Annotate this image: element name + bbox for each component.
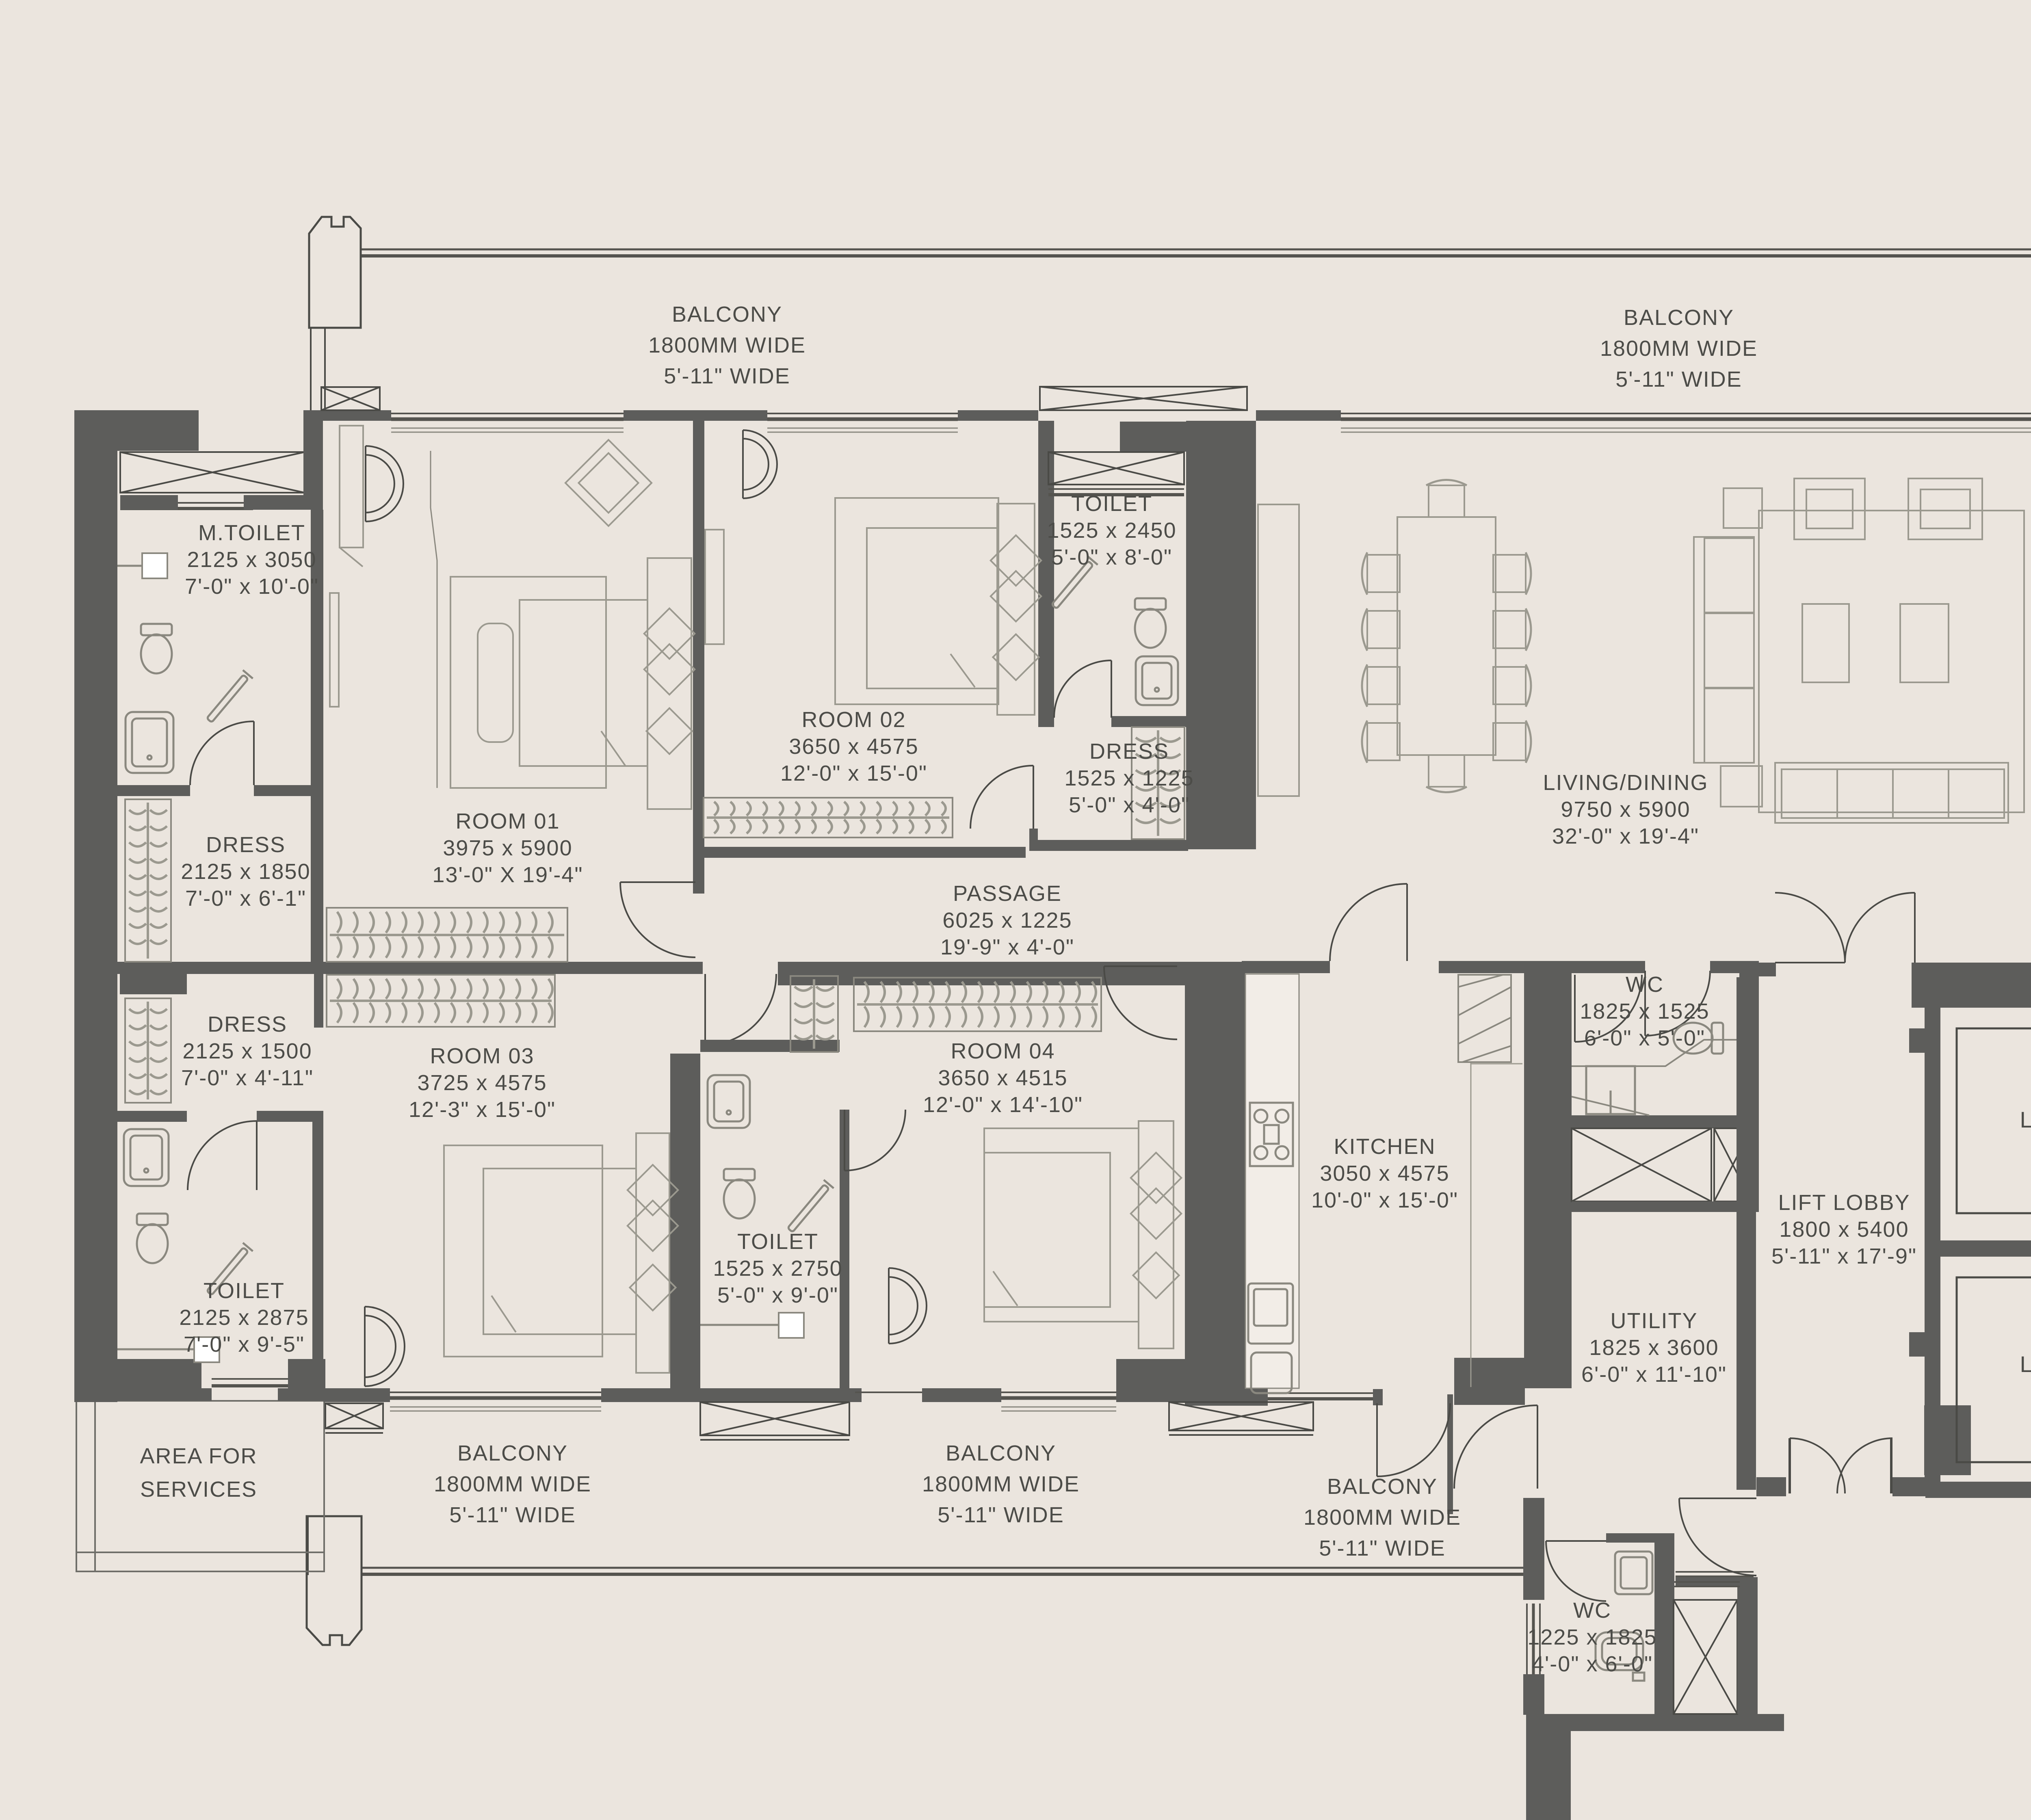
svg-text:BALCONY1800MM WIDE5'-11" WIDE: BALCONY1800MM WIDE5'-11" WIDE <box>922 1441 1080 1527</box>
svg-text:LIVING/DINING9750 x 590032'-0": LIVING/DINING9750 x 590032'-0" x 19'-4" <box>1543 770 1708 848</box>
svg-text:BALCONY1800MM WIDE5'-11" WIDE: BALCONY1800MM WIDE5'-11" WIDE <box>648 302 806 388</box>
svg-text:ROOM 023650 x 457512'-0" x 15': ROOM 023650 x 457512'-0" x 15'-0" <box>780 708 927 786</box>
svg-text:LIFT: LIFT <box>2020 1351 2031 1377</box>
svg-text:BALCONY1800MM WIDE5'-11" WIDE: BALCONY1800MM WIDE5'-11" WIDE <box>1600 305 1758 392</box>
svg-text:ROOM 033725 x 457512'-3" x 15': ROOM 033725 x 457512'-3" x 15'-0" <box>409 1044 556 1122</box>
svg-text:BALCONY1800MM WIDE5'-11" WIDE: BALCONY1800MM WIDE5'-11" WIDE <box>434 1441 591 1527</box>
svg-text:M.TOILET2125 x 30507'-0" x 10': M.TOILET2125 x 30507'-0" x 10'-0" <box>185 521 319 599</box>
svg-text:BALCONY1800MM WIDE5'-11" WIDE: BALCONY1800MM WIDE5'-11" WIDE <box>1303 1474 1461 1560</box>
svg-text:LIFT LOBBY1800 x 54005'-11" x: LIFT LOBBY1800 x 54005'-11" x 17'-9" <box>1771 1190 1917 1268</box>
svg-text:PASSAGE6025 x 122519'-9" x 4'-: PASSAGE6025 x 122519'-9" x 4'-0" <box>940 881 1074 959</box>
svg-text:LIFT: LIFT <box>2020 1107 2031 1132</box>
